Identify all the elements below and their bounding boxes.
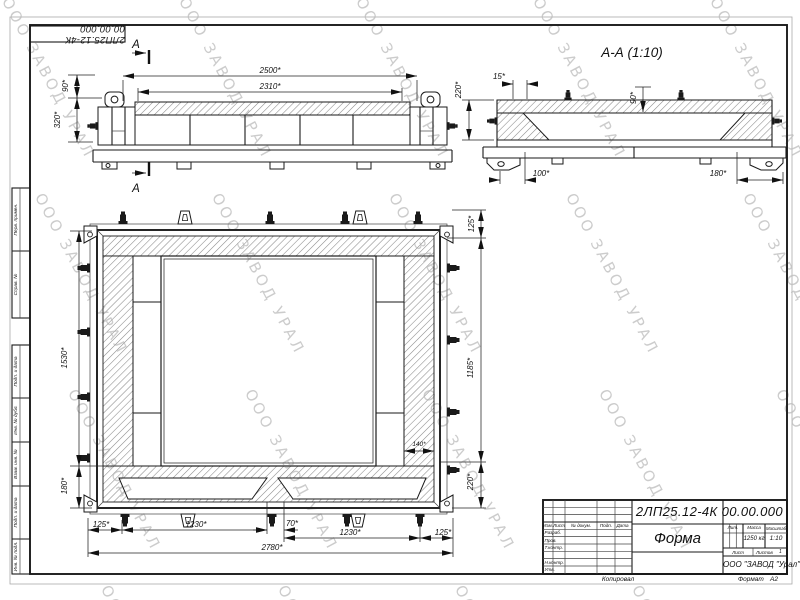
section-view: А-А (1:10) 15* 90* 220* xyxy=(454,45,786,184)
dim-label: 15* xyxy=(493,72,506,81)
row-tkontr: Т.контр. xyxy=(545,545,564,550)
top-view: 2500* 2310* 90* 320* А А xyxy=(53,39,458,195)
margin-label-podp-i-data-2: Подп. и дата xyxy=(13,486,21,539)
sheet-label: Лист xyxy=(723,550,753,555)
dim-label: 140* xyxy=(412,441,426,448)
scale-value: 1:10 xyxy=(765,535,787,542)
dim-label: 220* xyxy=(454,81,463,99)
margin-label-inv-no-podl: Инв. № подл. xyxy=(13,539,21,574)
dim-label: 220* xyxy=(466,473,475,491)
section-title: А-А (1:10) xyxy=(600,45,663,60)
dim-label: 125* xyxy=(435,528,452,537)
sheets-value: 1 xyxy=(779,549,782,555)
dim-label: 90* xyxy=(61,79,70,92)
dim-label: 2310* xyxy=(259,82,282,91)
dim-label: 180* xyxy=(60,477,69,494)
margin-label-perv-primen: Перв. примен. xyxy=(13,188,21,251)
sheets-label: Листов xyxy=(756,550,773,555)
col-izm: Изм. xyxy=(543,523,553,528)
scale-label: Масштаб xyxy=(765,526,787,531)
plan-view: 125* 1185* 220* 140* 1530* 180* 125* 123… xyxy=(60,210,486,557)
mass-value: 1250 кг xyxy=(743,536,765,542)
drawing-sheet: 2500* 2310* 90* 320* А А А-А (1:10) xyxy=(0,0,800,600)
corner-stamp-doc-number: 2ЛП25.12-4К 00.00.000 xyxy=(30,23,125,45)
row-nkontr: Н.контр. xyxy=(545,560,564,565)
dim-label: 100* xyxy=(533,169,550,178)
copied-label: Копировал xyxy=(578,576,658,583)
format-value: А2 xyxy=(770,576,778,583)
dim-label: 1230* xyxy=(186,520,208,529)
company-name: ООО "ЗАВОД "Урал" xyxy=(723,556,787,574)
dim-label: 70* xyxy=(286,519,299,528)
margin-label-inv-no-dubl: Инв. № дубл. xyxy=(13,398,21,442)
dim-label: 125* xyxy=(93,520,110,529)
col-data: Дата xyxy=(615,523,630,528)
margin-label-vzam-inv-no: Взам. инв. № xyxy=(13,442,21,486)
title-block-doc-number: 2ЛП25.12-4К 00.00.000 xyxy=(632,502,787,522)
lit-label: Лит. xyxy=(723,525,743,530)
section-mark-label: А xyxy=(131,183,140,195)
dim-label: 1230* xyxy=(340,528,362,537)
format-label: Формат xyxy=(738,576,764,583)
dim-label: 90* xyxy=(629,91,638,104)
row-utv: Утв. xyxy=(545,567,555,572)
dim-label: 1530* xyxy=(60,347,69,369)
section-mark-label: А xyxy=(131,39,140,51)
mass-label: Масса xyxy=(743,525,765,530)
title-block-part-name: Форма xyxy=(632,527,723,551)
margin-label-podp-i-data-1: Подп. и дата xyxy=(13,345,21,398)
dim-label: 1185* xyxy=(466,357,475,378)
margin-label-sprav-no: Справ. № xyxy=(13,251,21,318)
dim-label: 320* xyxy=(53,111,62,128)
col-list: Лист xyxy=(553,523,565,528)
dim-label: 2780* xyxy=(261,543,284,552)
col-podp: Подп. xyxy=(597,523,615,528)
dim-label: 2500* xyxy=(259,66,282,75)
dim-label: 125* xyxy=(467,215,476,232)
row-razrab: Разраб. xyxy=(545,530,562,535)
row-prov: Пров. xyxy=(545,538,557,543)
corner-stamp: 2ЛП25.12-4К 00.00.000 xyxy=(30,26,125,42)
dim-label: 180* xyxy=(710,169,727,178)
col-ndoc: № докум. xyxy=(565,523,597,528)
